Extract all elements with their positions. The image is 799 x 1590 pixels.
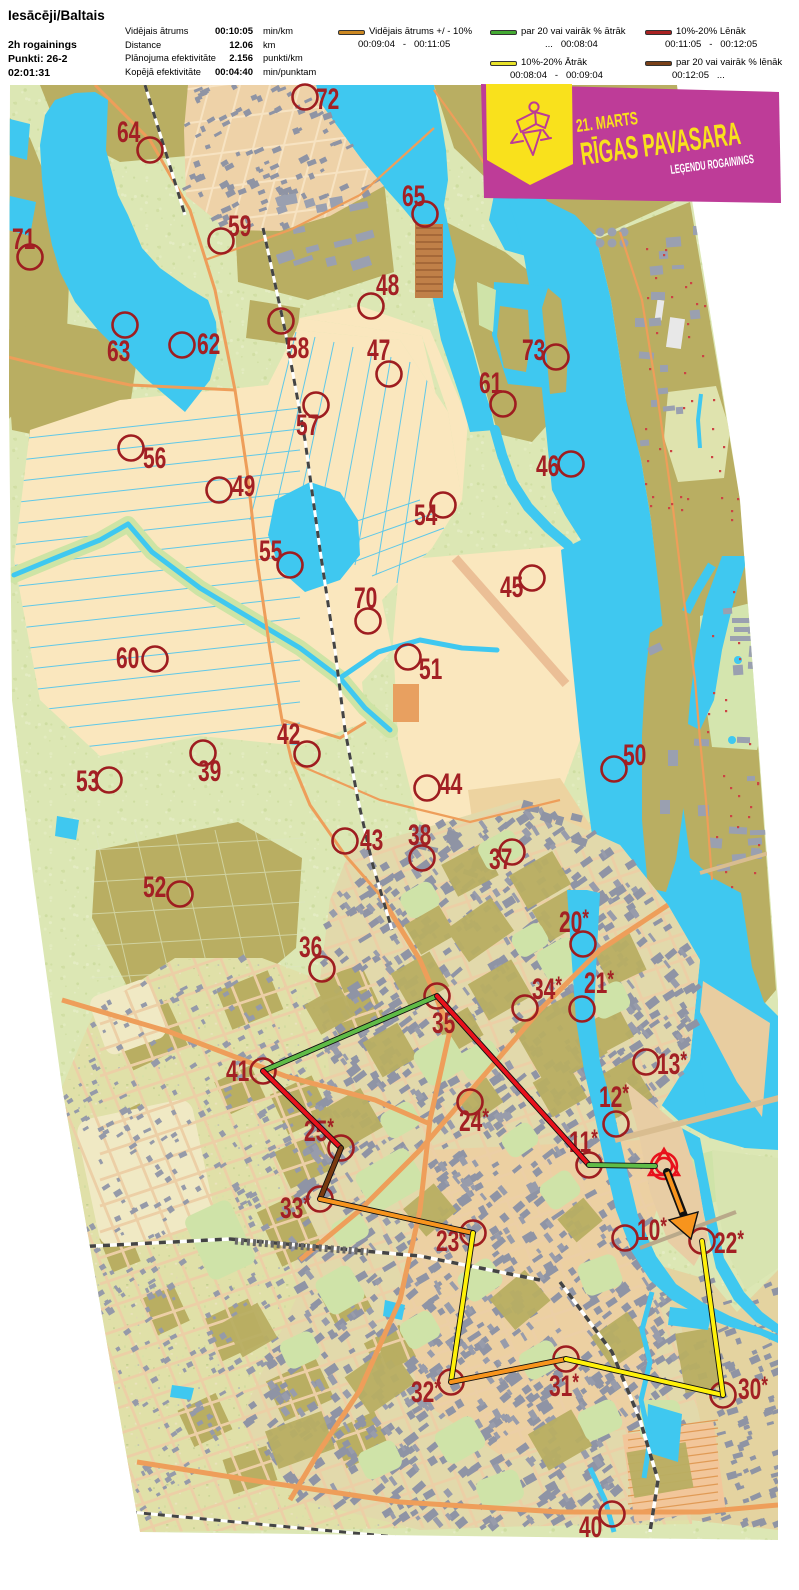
svg-text:57: 57	[296, 410, 319, 442]
svg-text:56: 56	[143, 443, 166, 475]
svg-text:44: 44	[439, 769, 463, 801]
svg-text:36: 36	[299, 932, 322, 964]
svg-text:49: 49	[232, 471, 255, 503]
svg-text:60: 60	[116, 643, 139, 675]
svg-text:46: 46	[536, 451, 559, 483]
svg-text:70: 70	[354, 583, 377, 615]
svg-text:54: 54	[414, 500, 438, 532]
svg-text:71: 71	[12, 224, 35, 256]
svg-text:59: 59	[228, 211, 251, 243]
svg-text:38: 38	[408, 820, 431, 852]
svg-text:40: 40	[579, 1512, 602, 1544]
svg-text:64: 64	[117, 117, 141, 149]
svg-text:37: 37	[489, 844, 512, 876]
svg-text:43: 43	[360, 825, 383, 857]
svg-text:50: 50	[623, 740, 646, 772]
svg-text:47: 47	[367, 335, 390, 367]
svg-text:39: 39	[198, 756, 221, 788]
svg-text:63: 63	[107, 336, 130, 368]
svg-text:45: 45	[500, 572, 523, 604]
svg-text:72: 72	[316, 84, 339, 116]
svg-text:62: 62	[197, 329, 220, 361]
svg-text:55: 55	[259, 536, 282, 568]
svg-text:51: 51	[419, 654, 442, 686]
svg-text:61: 61	[479, 368, 502, 400]
svg-text:73: 73	[522, 335, 545, 367]
svg-text:52: 52	[143, 872, 166, 904]
svg-text:41: 41	[226, 1056, 249, 1088]
svg-text:58: 58	[286, 333, 309, 365]
svg-text:48: 48	[376, 270, 399, 302]
svg-text:53: 53	[76, 766, 99, 798]
svg-text:42: 42	[277, 719, 300, 751]
svg-text:65: 65	[402, 181, 425, 213]
